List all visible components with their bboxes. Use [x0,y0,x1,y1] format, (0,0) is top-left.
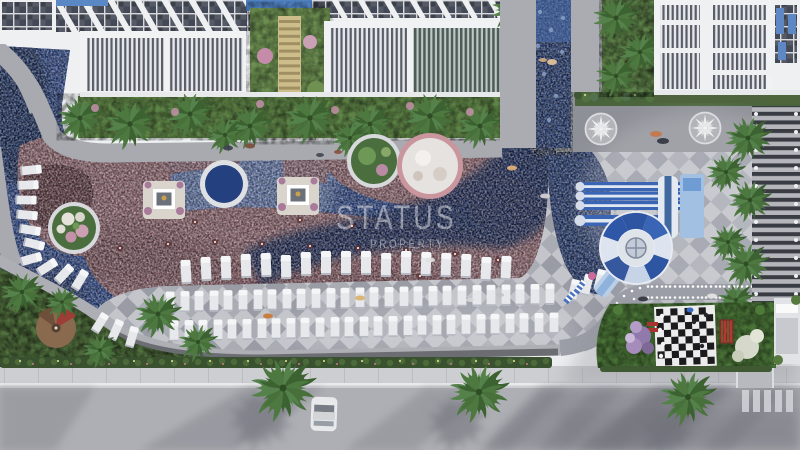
svg-text:STATUS: STATUS [336,198,457,237]
svg-text:PROPERTY: PROPERTY [370,238,445,251]
